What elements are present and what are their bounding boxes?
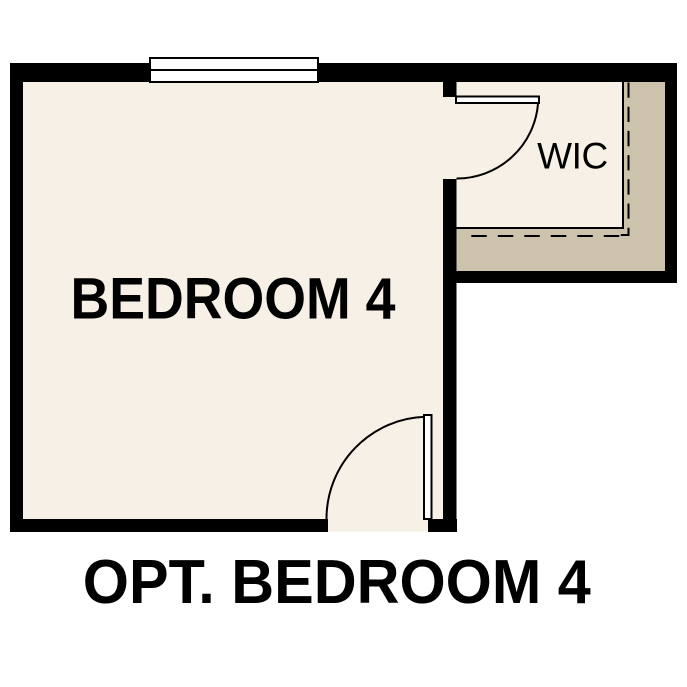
- svg-text:WIC: WIC: [537, 135, 608, 176]
- svg-text:BEDROOM 4: BEDROOM 4: [71, 267, 396, 332]
- svg-text:OPT. BEDROOM 4: OPT. BEDROOM 4: [83, 548, 591, 617]
